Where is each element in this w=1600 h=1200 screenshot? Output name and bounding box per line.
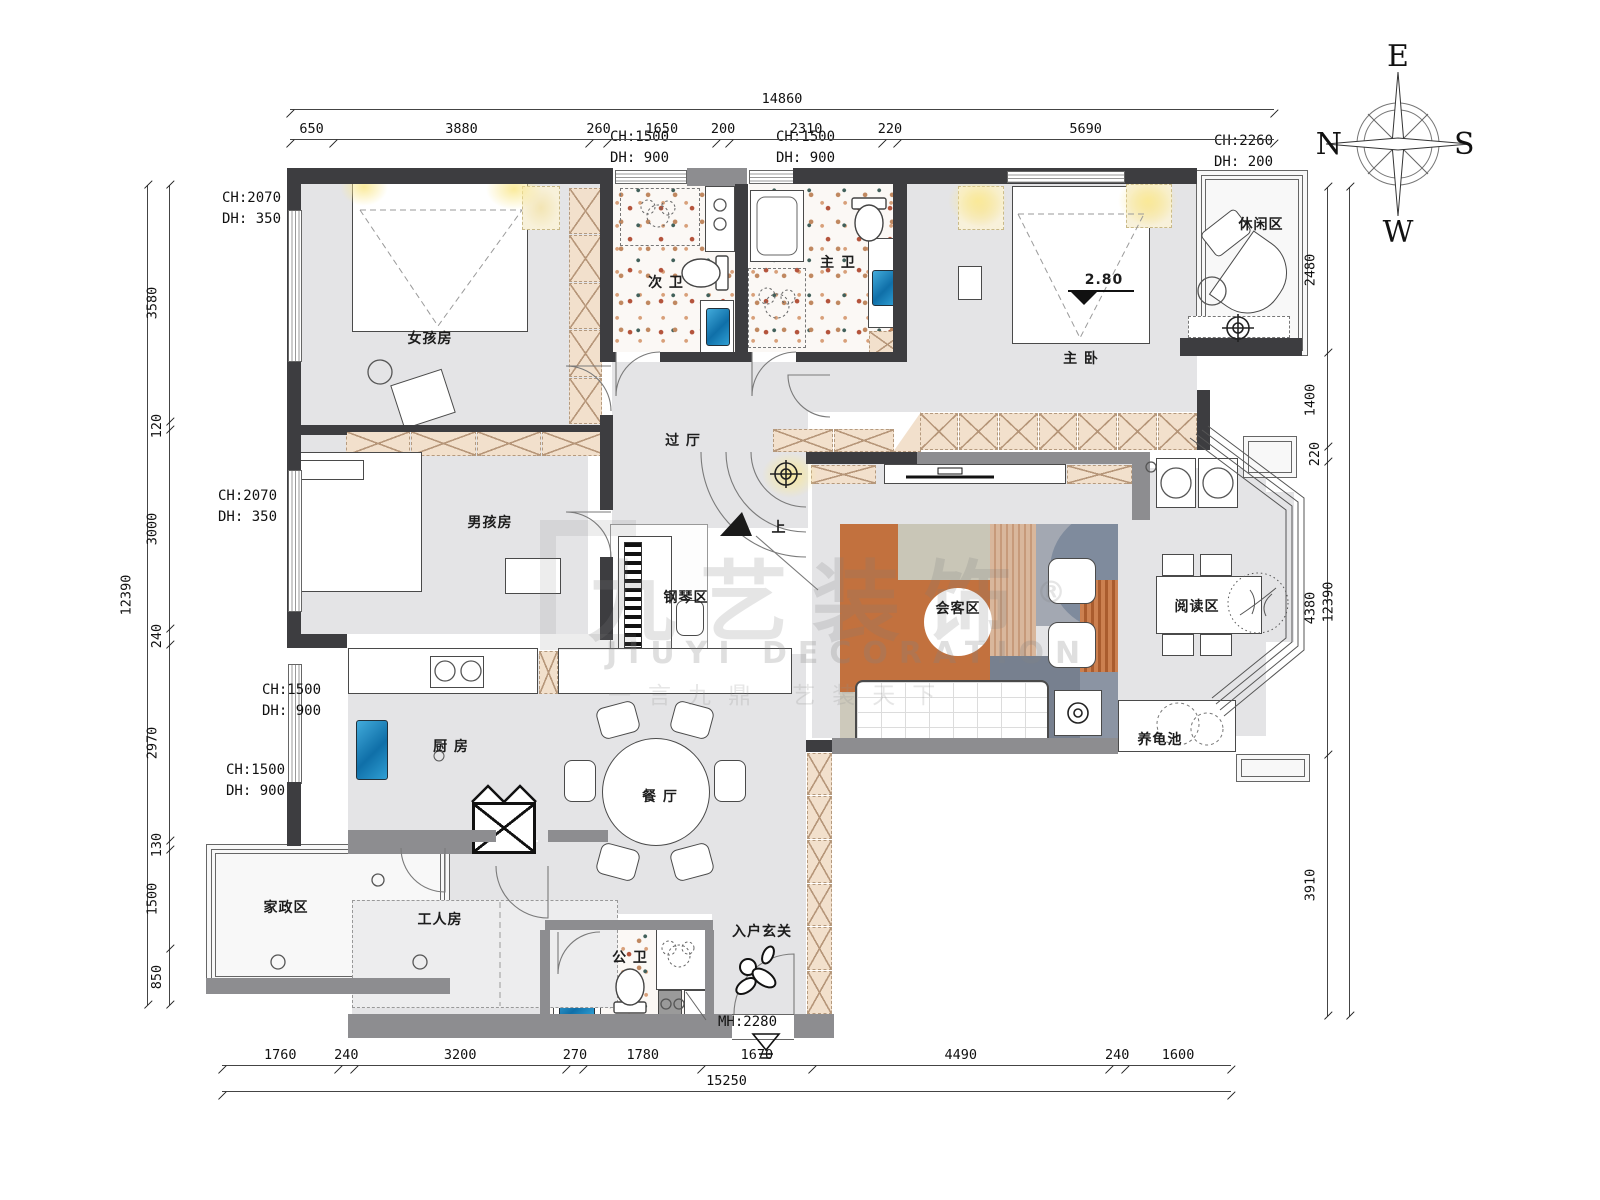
compass-left: N — [1316, 127, 1342, 162]
room-label: 入户玄关 — [732, 921, 792, 941]
dimension-chain: 12390 — [1332, 187, 1350, 1016]
bay-window — [1190, 426, 1304, 716]
room-label: 2.80 — [1085, 272, 1124, 288]
room-label: 钢琴区 — [664, 587, 709, 607]
room-label: 次 卫 — [648, 272, 684, 292]
compass-top: E — [1387, 39, 1409, 74]
height-annotation: CH:1500DH: 900 — [262, 680, 321, 722]
stool-icon — [368, 360, 392, 384]
door-arc — [788, 375, 830, 417]
burner-icon — [435, 661, 455, 681]
height-annotation: MH:2280 — [718, 1012, 777, 1033]
dimension-chain: 3580120300024029701301500850 — [152, 185, 170, 1005]
tv-icon — [906, 468, 994, 477]
door-arc — [752, 352, 796, 396]
height-annotation: CH:2070DH: 350 — [222, 188, 281, 230]
room-label: 会客区 — [936, 598, 981, 618]
room-label: 餐 厅 — [642, 786, 678, 806]
room-label: 休闲区 — [1239, 214, 1284, 234]
appliance-top — [472, 786, 536, 802]
dimension-chain: 176024032002701780167044902401600 — [222, 1048, 1231, 1066]
tub-inner — [757, 197, 797, 255]
room-label: 工人房 — [418, 909, 463, 929]
room-label: 阅读区 — [1175, 596, 1220, 616]
room-label: 厨 房 — [433, 736, 469, 756]
bed-fold-lines — [360, 210, 522, 326]
stair-arc — [751, 452, 806, 507]
plant-icon — [1228, 573, 1288, 633]
door-arc — [566, 366, 611, 411]
floorplan-sheet: E N S W 九艺装饰® JIUYI DECORATION 一言九鼎 艺装天下… — [0, 0, 1600, 1200]
burner-icon — [461, 661, 481, 681]
room-label: 上 — [772, 517, 787, 537]
room-label: 主 卫 — [820, 252, 856, 272]
person-icon — [734, 945, 779, 997]
height-annotation: CH:1500DH: 900 — [226, 760, 285, 802]
mirror-line — [686, 992, 706, 1020]
room-label: 过 厅 — [665, 430, 701, 450]
compass-bottom: W — [1383, 215, 1414, 250]
compass-right: S — [1454, 127, 1475, 162]
watermark-reg: ® — [1036, 576, 1066, 611]
door-arc — [558, 932, 600, 974]
room-label: 公 卫 — [612, 947, 648, 967]
watermark-latin: JIUYI DECORATION — [606, 636, 1091, 671]
height-annotation: CH:2070DH: 350 — [218, 486, 277, 528]
dimension-chain: 15250 — [222, 1074, 1231, 1092]
room-label: 家政区 — [264, 897, 309, 917]
door-arc — [401, 848, 445, 892]
door-arc — [616, 352, 660, 396]
bed-fold-lines — [1018, 214, 1144, 338]
dimension-chain: 14860 — [290, 92, 1274, 110]
room-label: 养龟池 — [1138, 729, 1183, 749]
watermark-slogan: 一言九鼎 艺装天下 — [608, 676, 952, 710]
washer-drum-icon — [1203, 468, 1233, 498]
washer-drum-icon — [1161, 468, 1191, 498]
room-label: 女孩房 — [408, 328, 453, 348]
dimension-chain: 6503880260165020023102205690 — [290, 122, 1274, 140]
room-label: 男孩房 — [468, 512, 513, 532]
room-label: 主 卧 — [1063, 348, 1099, 368]
floor-lamp-icon — [1198, 277, 1226, 305]
door-arc — [496, 866, 548, 918]
